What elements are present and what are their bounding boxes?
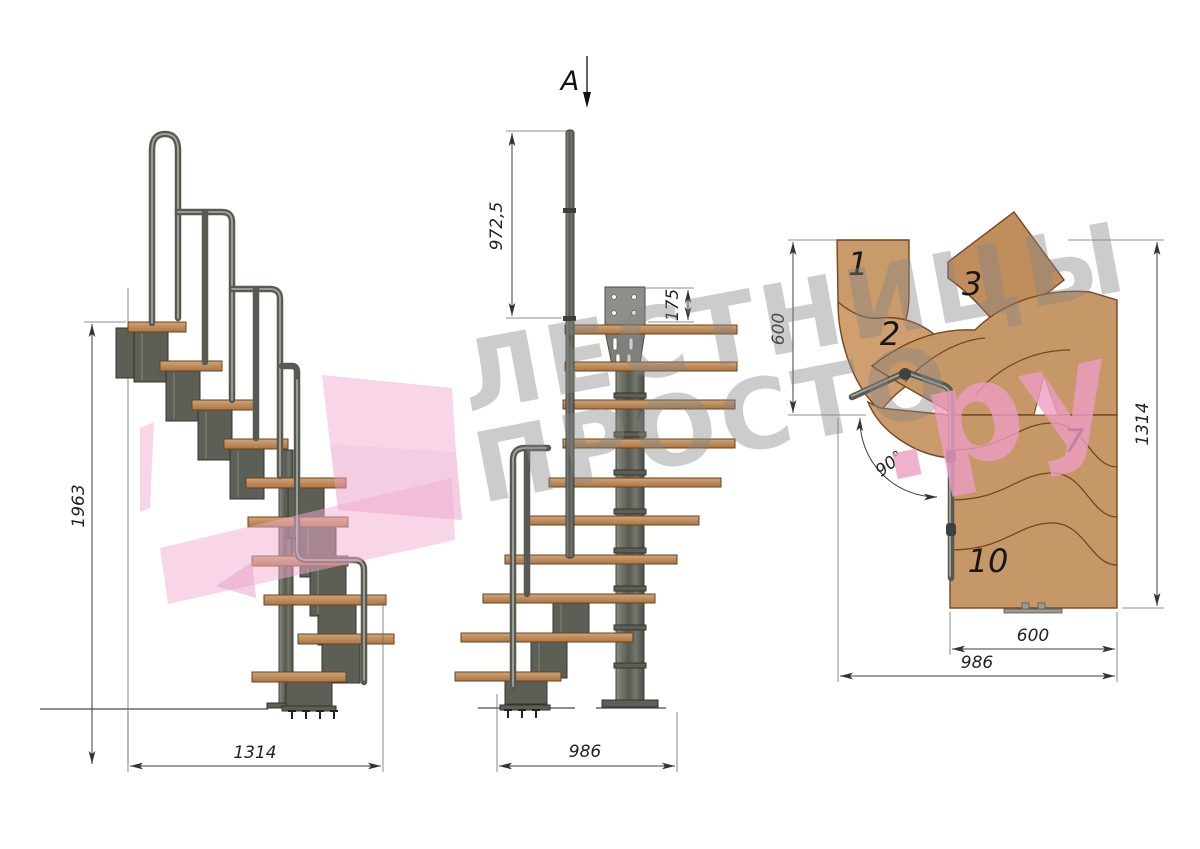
drawing-svg: 1963 1314 A <box>0 0 1200 849</box>
column-base <box>602 700 658 707</box>
step-number-10: 10 <box>968 542 1009 580</box>
wall-bracket <box>116 328 134 378</box>
dim-handrail-label: 972,5 <box>487 202 507 251</box>
dim-width-front-label: 986 <box>569 742 602 762</box>
dim-step-width-label: 600 <box>1017 626 1049 646</box>
dim-height-label: 1963 <box>69 484 89 527</box>
section-letter-a: A <box>559 66 579 97</box>
dim-total-label: 986 <box>961 653 994 673</box>
stair-technical-drawing: 1963 1314 A <box>0 0 1200 849</box>
dim-length-label: 1314 <box>1133 402 1153 445</box>
dim-depth-label: 1314 <box>233 743 276 763</box>
